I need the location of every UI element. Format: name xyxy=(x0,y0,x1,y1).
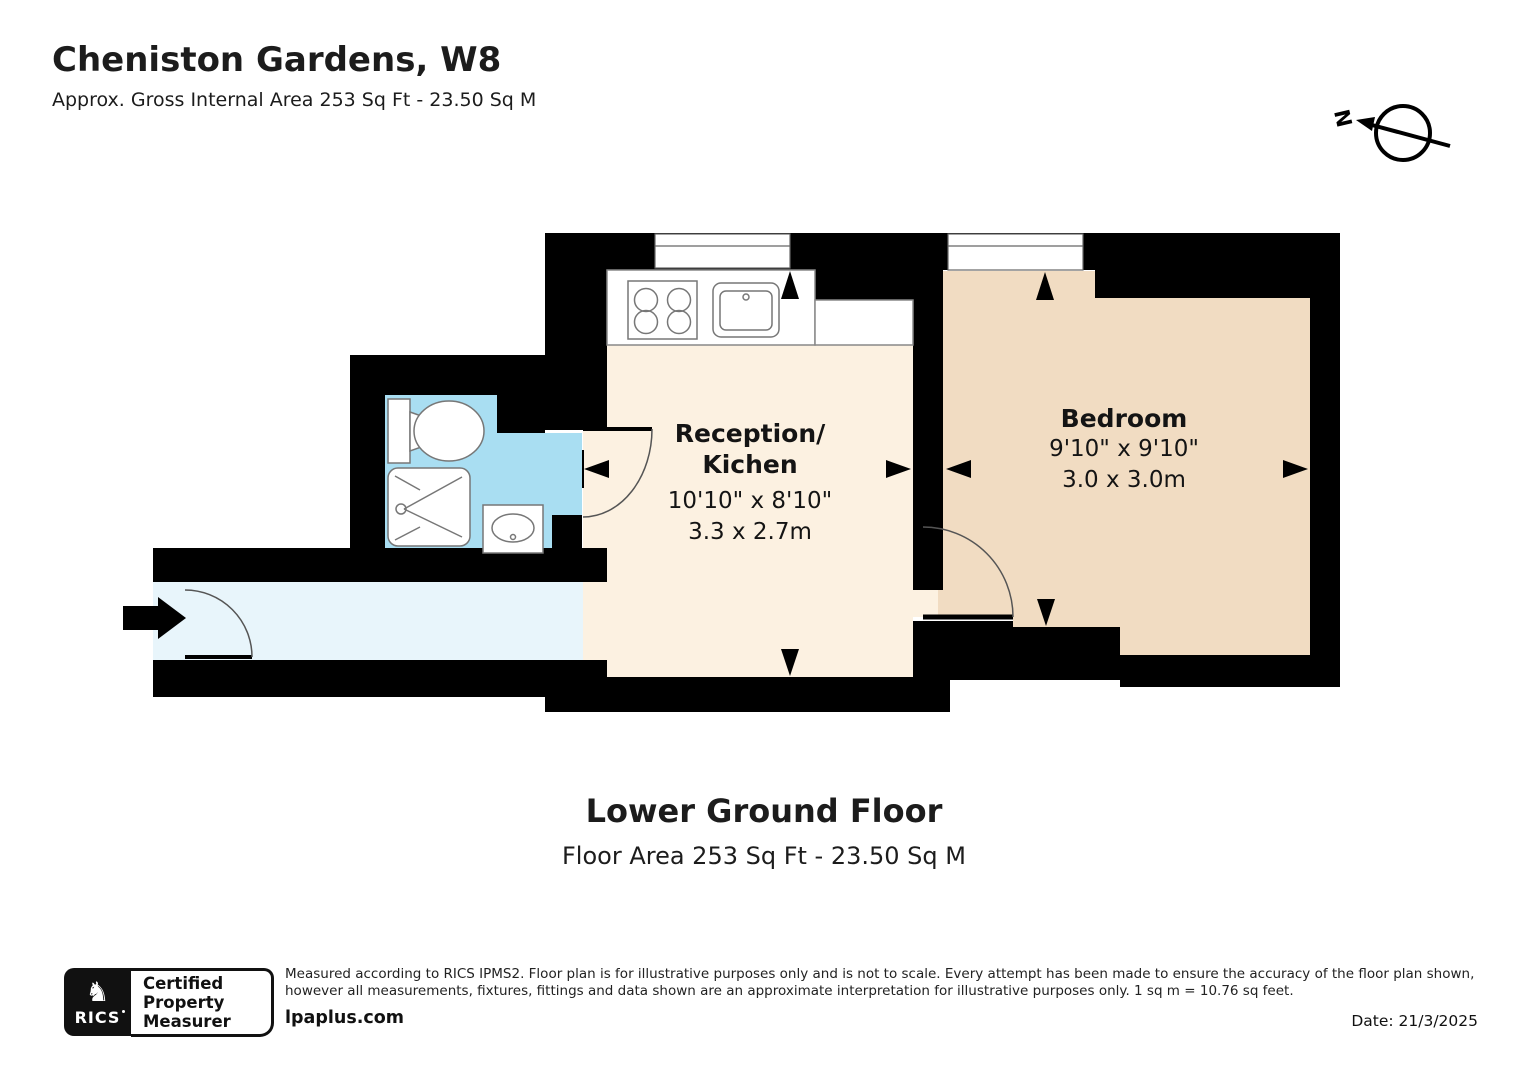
date-text: Date: 21/3/2025 xyxy=(1351,1012,1478,1030)
wall-bathroom-notch xyxy=(497,393,545,433)
wall-right-outer xyxy=(1310,270,1340,655)
disclaimer-text: Measured according to RICS IPMS2. Floor … xyxy=(285,966,1481,1000)
basin-icon xyxy=(483,505,543,553)
reception-window xyxy=(655,234,790,268)
bedroom-room-label: Bedroom 9'10" x 9'10" 3.0 x 3.0m xyxy=(1049,403,1199,496)
hob-icon xyxy=(628,281,697,339)
bedroom-name: Bedroom xyxy=(1049,403,1199,434)
hallway-floor xyxy=(153,582,583,660)
bedroom-dims-imperial: 9'10" x 9'10" xyxy=(1049,434,1199,465)
page-title: Cheniston Gardens, W8 xyxy=(52,40,501,80)
compass-north-label: N xyxy=(1330,107,1357,130)
floor-title: Lower Ground Floor xyxy=(0,792,1528,830)
bedroom-dims-metric: 3.0 x 3.0m xyxy=(1049,465,1199,496)
wall-reception-bottom xyxy=(545,677,950,712)
badge-line-2: Property xyxy=(143,993,271,1012)
toilet-icon xyxy=(388,399,484,463)
certified-property-measurer-label: Certified Property Measurer xyxy=(131,968,274,1037)
badge-line-1: Certified xyxy=(143,974,271,993)
rics-brand-text: RICS xyxy=(75,1008,121,1027)
rics-certified-badge: ♞ RICS Certified Property Measurer xyxy=(64,968,274,1036)
reception-dims-imperial: 10'10" x 8'10" xyxy=(668,486,832,517)
bedroom-window xyxy=(948,234,1083,270)
rics-lion-crest-icon: ♞ xyxy=(85,978,109,1008)
wall-bathroom-left xyxy=(350,393,385,553)
website-text: lpaplus.com xyxy=(285,1008,404,1028)
wall-top-right-thick xyxy=(1095,270,1340,298)
wall-divider-reception-bedroom xyxy=(913,268,943,590)
wall-below-bedroom-door xyxy=(913,621,1013,680)
wall-hallway-bottom xyxy=(153,660,607,697)
reception-name-line1: Reception/ xyxy=(668,418,832,449)
north-compass-icon: N xyxy=(1330,106,1450,160)
reception-dims-metric: 3.3 x 2.7m xyxy=(668,517,832,548)
wall-step-over-counter xyxy=(815,270,913,300)
shower-icon xyxy=(388,468,470,546)
wall-bathroom-top xyxy=(350,355,545,395)
reception-name-line2: Kichen xyxy=(668,449,832,480)
counter-worktop-right xyxy=(815,300,913,345)
kitchen-sink-icon xyxy=(713,283,779,337)
badge-line-3: Measurer xyxy=(143,1012,271,1031)
wall-bedroom-bottom-right xyxy=(1120,655,1340,687)
rics-logo: ♞ RICS xyxy=(64,968,131,1036)
reception-room-label: Reception/ Kichen 10'10" x 8'10" 3.3 x 2… xyxy=(668,418,832,548)
floor-area: Floor Area 253 Sq Ft - 23.50 Sq M xyxy=(0,842,1528,870)
page-subtitle: Approx. Gross Internal Area 253 Sq Ft - … xyxy=(52,88,536,112)
wall-reception-left-chunk xyxy=(545,268,607,430)
wall-bedroom-bottom-left xyxy=(1013,627,1120,680)
